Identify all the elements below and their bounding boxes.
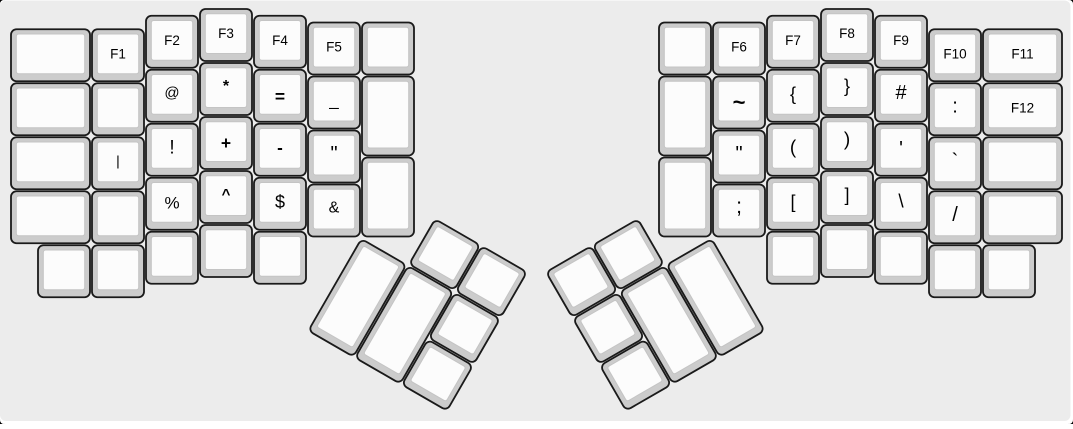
svg-text:|: | [116,152,120,168]
svg-text:F9: F9 [893,33,909,48]
svg-text:^: ^ [222,186,231,203]
svg-text:": " [330,143,337,165]
svg-text:/: / [952,204,958,226]
svg-text:F1: F1 [110,46,126,61]
svg-text:(: ( [790,137,797,158]
svg-text:}: } [844,76,850,96]
svg-text:[: [ [790,192,795,212]
svg-text:!: ! [169,137,174,158]
svg-text:*: * [223,78,230,95]
svg-text:F3: F3 [218,26,234,41]
svg-text:': ' [899,138,903,160]
svg-text:-: - [277,138,283,157]
svg-text:F4: F4 [272,33,288,48]
svg-text:\: \ [898,191,904,212]
svg-text:@: @ [164,85,179,102]
svg-text:F7: F7 [785,33,801,48]
svg-text:$: $ [275,192,285,212]
svg-text:F5: F5 [326,40,342,55]
svg-text:F8: F8 [839,26,855,41]
svg-text:{: { [790,84,796,104]
svg-text:]: ] [844,185,849,205]
svg-text:F2: F2 [164,33,180,48]
svg-text:": " [735,143,742,165]
svg-text:&: & [329,200,340,217]
svg-text:+: + [221,133,231,153]
svg-text:F6: F6 [731,40,747,55]
svg-text:%: % [164,194,179,213]
svg-text:): ) [844,129,850,150]
svg-text:~: ~ [733,89,746,114]
svg-text:`: ` [952,151,959,173]
svg-text:;: ; [736,195,742,218]
svg-text:#: # [895,82,907,104]
svg-text:F10: F10 [943,46,966,61]
svg-text:F11: F11 [1011,46,1033,61]
svg-text:F12: F12 [1011,100,1034,115]
svg-text:_: _ [328,90,339,109]
svg-text:=: = [275,86,285,106]
svg-text::: : [952,96,958,118]
